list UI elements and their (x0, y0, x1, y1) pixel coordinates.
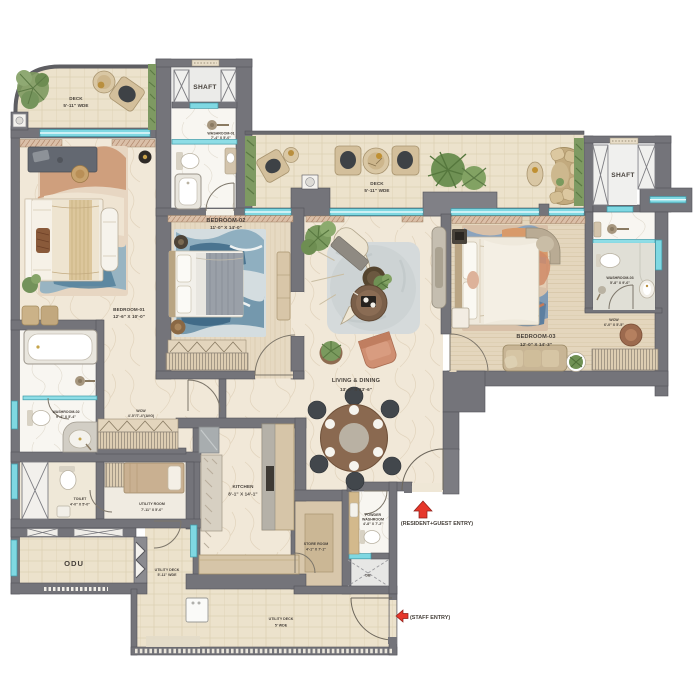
svg-text:11'-0" X 14'-0": 11'-0" X 14'-0" (210, 225, 242, 230)
svg-text:7'-11" X 5'-6": 7'-11" X 5'-6" (141, 508, 163, 512)
svg-text:STORE ROOM: STORE ROOM (304, 542, 329, 546)
svg-text:WCW: WCW (609, 318, 619, 322)
svg-text:5'-11" WDE: 5'-11" WDE (63, 103, 88, 108)
svg-text:SHAFT: SHAFT (611, 172, 634, 179)
svg-text:BEDROOM-01: BEDROOM-01 (113, 307, 145, 312)
svg-text:13'-0" X 23'-6": 13'-0" X 23'-6" (340, 387, 372, 392)
svg-text:6'-0" X 5'-5": 6'-0" X 5'-5" (604, 323, 624, 327)
svg-text:4'-0" X 5'-0": 4'-0" X 5'-0" (70, 503, 90, 507)
svg-text:DECK: DECK (69, 96, 83, 101)
svg-text:BEDROOM-02: BEDROOM-02 (206, 218, 245, 224)
svg-text:9'-4" X 5'-4": 9'-4" X 5'-4" (56, 415, 76, 419)
svg-text:5' WDE: 5' WDE (275, 624, 288, 628)
svg-text:WASHROOM-01: WASHROOM-01 (207, 132, 234, 136)
svg-text:5'-8" X 9'-6": 5'-8" X 9'-6" (610, 281, 630, 285)
svg-text:12'-6" X 10'-0": 12'-6" X 10'-0" (113, 314, 145, 319)
svg-text:8'-1" X 14'-1": 8'-1" X 14'-1" (228, 492, 257, 497)
svg-text:BEDROOM-03: BEDROOM-03 (516, 334, 555, 340)
svg-text:WCW: WCW (136, 409, 146, 413)
svg-text:4'-8" X 7'-2": 4'-8" X 7'-2" (363, 522, 383, 526)
svg-text:DB: DB (365, 574, 371, 578)
svg-text:(STAFF ENTRY): (STAFF ENTRY) (410, 615, 450, 621)
svg-text:12'-0" X 14'-3": 12'-0" X 14'-3" (520, 342, 552, 347)
svg-text:ODU: ODU (64, 559, 84, 568)
svg-text:SHAFT: SHAFT (193, 84, 216, 91)
svg-text:POWDER: POWDER (365, 513, 382, 517)
svg-text:LIVING & DINING: LIVING & DINING (332, 378, 380, 384)
svg-text:UTILITY ROOM: UTILITY ROOM (139, 502, 165, 506)
svg-text:4'-1" X 7'-1": 4'-1" X 7'-1" (306, 548, 326, 552)
svg-text:UTILITY DECK: UTILITY DECK (155, 568, 180, 572)
svg-text:KITCHEN: KITCHEN (232, 484, 254, 489)
svg-text:TOILET: TOILET (74, 497, 88, 501)
svg-text:WASHROOM: WASHROOM (362, 518, 384, 522)
svg-text:WASHROOM-03: WASHROOM-03 (606, 276, 633, 280)
svg-text:7'-4" X 5'-0": 7'-4" X 5'-0" (211, 136, 231, 140)
svg-text:5'-11" WDE: 5'-11" WDE (158, 573, 178, 577)
svg-text:4'-5"/7'-4"(AVG): 4'-5"/7'-4"(AVG) (128, 414, 155, 418)
svg-text:5'-11" WDE: 5'-11" WDE (364, 188, 389, 193)
svg-text:UTILITY DECK: UTILITY DECK (269, 617, 294, 621)
svg-text:WASHROOM-02: WASHROOM-02 (52, 410, 79, 414)
svg-text:(RESIDENT+GUEST ENTRY): (RESIDENT+GUEST ENTRY) (401, 521, 473, 527)
svg-text:DECK: DECK (370, 181, 384, 186)
